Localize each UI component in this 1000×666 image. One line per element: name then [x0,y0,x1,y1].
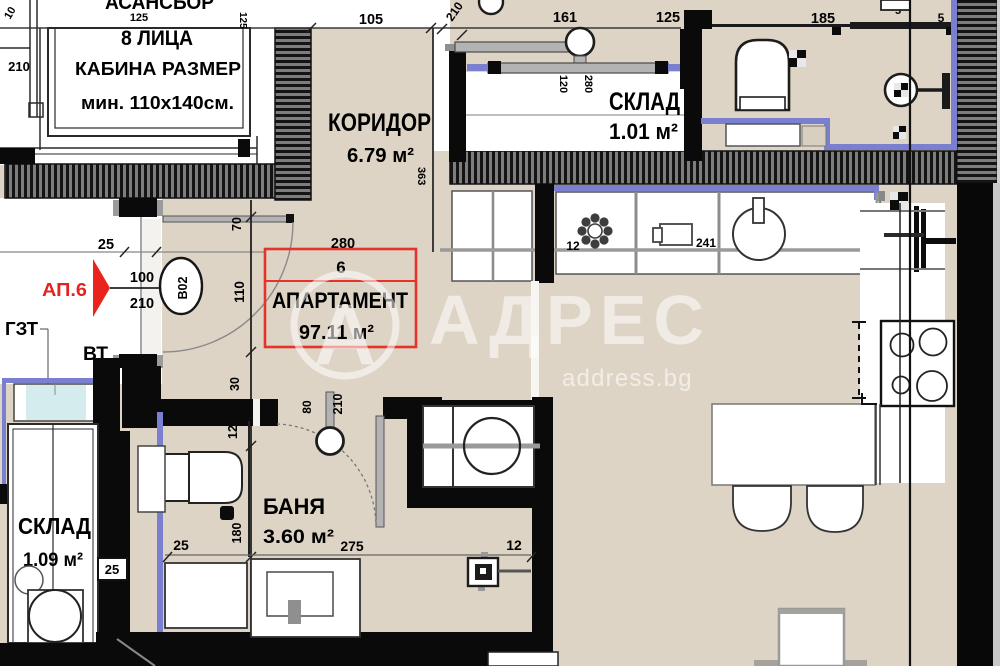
svg-text:210: 210 [130,296,154,312]
svg-text:БАНЯ: БАНЯ [263,494,325,519]
svg-text:110: 110 [232,281,247,303]
svg-text:СКЛАД: СКЛАД [18,513,91,539]
svg-text:12: 12 [506,537,522,553]
svg-text:3.60 м²: 3.60 м² [263,527,334,548]
svg-text:125: 125 [130,12,148,24]
svg-text:30: 30 [228,377,242,391]
svg-text:210: 210 [331,394,345,415]
svg-text:275: 275 [340,538,364,554]
svg-text:70: 70 [230,217,244,231]
svg-text:125: 125 [237,12,248,29]
svg-text:25: 25 [98,237,114,253]
svg-text:6.79 м²: 6.79 м² [347,145,414,167]
svg-text:210: 210 [8,59,30,74]
svg-text:105: 105 [359,12,383,28]
svg-text:ГЗТ: ГЗТ [5,319,38,339]
svg-text:мин. 110х140см.: мин. 110х140см. [81,93,234,113]
svg-text:25: 25 [105,562,119,577]
svg-text:363: 363 [415,167,427,185]
svg-text:АП.6: АП.6 [42,280,87,300]
svg-text:161: 161 [553,10,577,26]
svg-text:180: 180 [230,523,244,544]
svg-text:address.bg: address.bg [562,365,693,392]
svg-text:80: 80 [300,400,314,414]
svg-text:120: 120 [557,75,569,93]
svg-text:СКЛАД: СКЛАД [609,88,680,116]
svg-text:241: 241 [696,236,716,250]
svg-text:КОРИДОР: КОРИДОР [328,109,431,137]
svg-text:280: 280 [582,75,594,93]
svg-text:8 ЛИЦА: 8 ЛИЦА [121,27,193,50]
svg-text:В02: В02 [176,276,190,299]
svg-text:12: 12 [226,425,240,439]
svg-text:КАБИНА РАЗМЕР: КАБИНА РАЗМЕР [75,58,241,79]
svg-text:А: А [314,287,376,383]
svg-text:125: 125 [656,10,680,26]
svg-text:АСАНСЬОР: АСАНСЬОР [105,0,214,14]
svg-text:185: 185 [811,11,835,27]
svg-text:280: 280 [331,236,355,252]
svg-text:1.01 м²: 1.01 м² [609,119,678,144]
svg-text:5: 5 [938,11,945,25]
svg-text:25: 25 [173,537,189,553]
svg-text:12: 12 [566,239,580,253]
svg-text:АДРЕС: АДРЕС [429,281,711,359]
svg-text:100: 100 [130,270,154,286]
